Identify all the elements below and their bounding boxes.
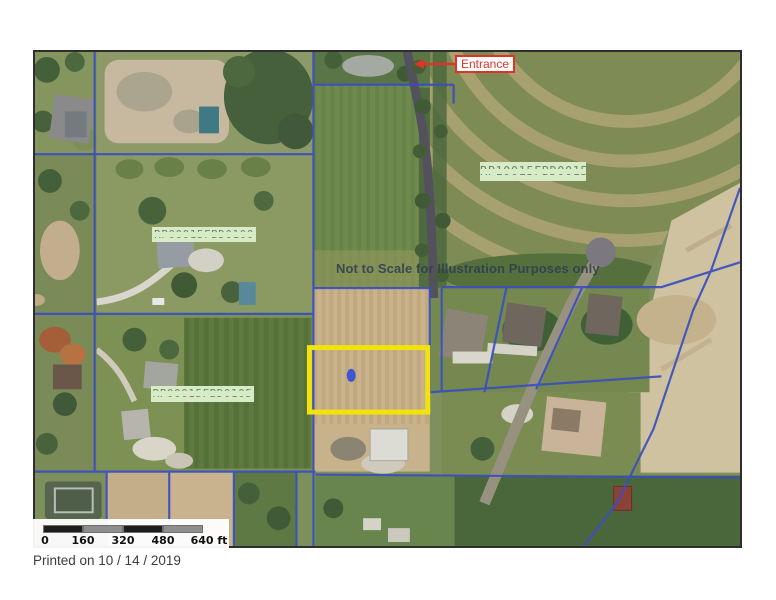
printed-parcel-map-page: Entrance RP10015FBD0015 RP00015FBD0100 R… (0, 0, 776, 600)
lower-house-parcel (442, 392, 641, 475)
scale-segment (123, 525, 163, 533)
field-arena (97, 52, 314, 154)
entrance-label: Entrance (455, 55, 515, 73)
aerial-imagery (35, 52, 740, 546)
scale-bar: 0 160 320 480 640 ft (33, 519, 229, 548)
field-top-left (35, 52, 97, 154)
scale-tick-label: 640 ft (191, 534, 228, 547)
entrance-arrow-icon (414, 57, 456, 71)
scale-segment (43, 525, 83, 533)
parcel-id-label: RP00015FBD0105 (151, 386, 254, 402)
parcel-marker-dot (347, 369, 356, 382)
bottom-fields (315, 476, 740, 546)
scale-tick-label: 160 (72, 534, 95, 547)
parcel-id-label: RP10015FBD0015 (480, 162, 586, 181)
scale-tick-label: 0 (41, 534, 49, 547)
scale-tick-label: 320 (112, 534, 135, 547)
scale-segment (163, 525, 203, 533)
field-centre-crop (313, 85, 430, 288)
scale-bar-segments (43, 525, 203, 533)
parcel-id-label: RP00015FBD0100 (152, 227, 256, 242)
aerial-map (33, 50, 742, 548)
scale-segment (83, 525, 123, 533)
printed-date: Printed on 10 / 14 / 2019 (33, 553, 181, 568)
tan-field-and-construction (313, 288, 429, 473)
entrance-annotation: Entrance (414, 55, 515, 73)
not-to-scale-disclaimer: Not to Scale for Illustration Purposes o… (336, 261, 600, 276)
scale-tick-label: 480 (152, 534, 175, 547)
